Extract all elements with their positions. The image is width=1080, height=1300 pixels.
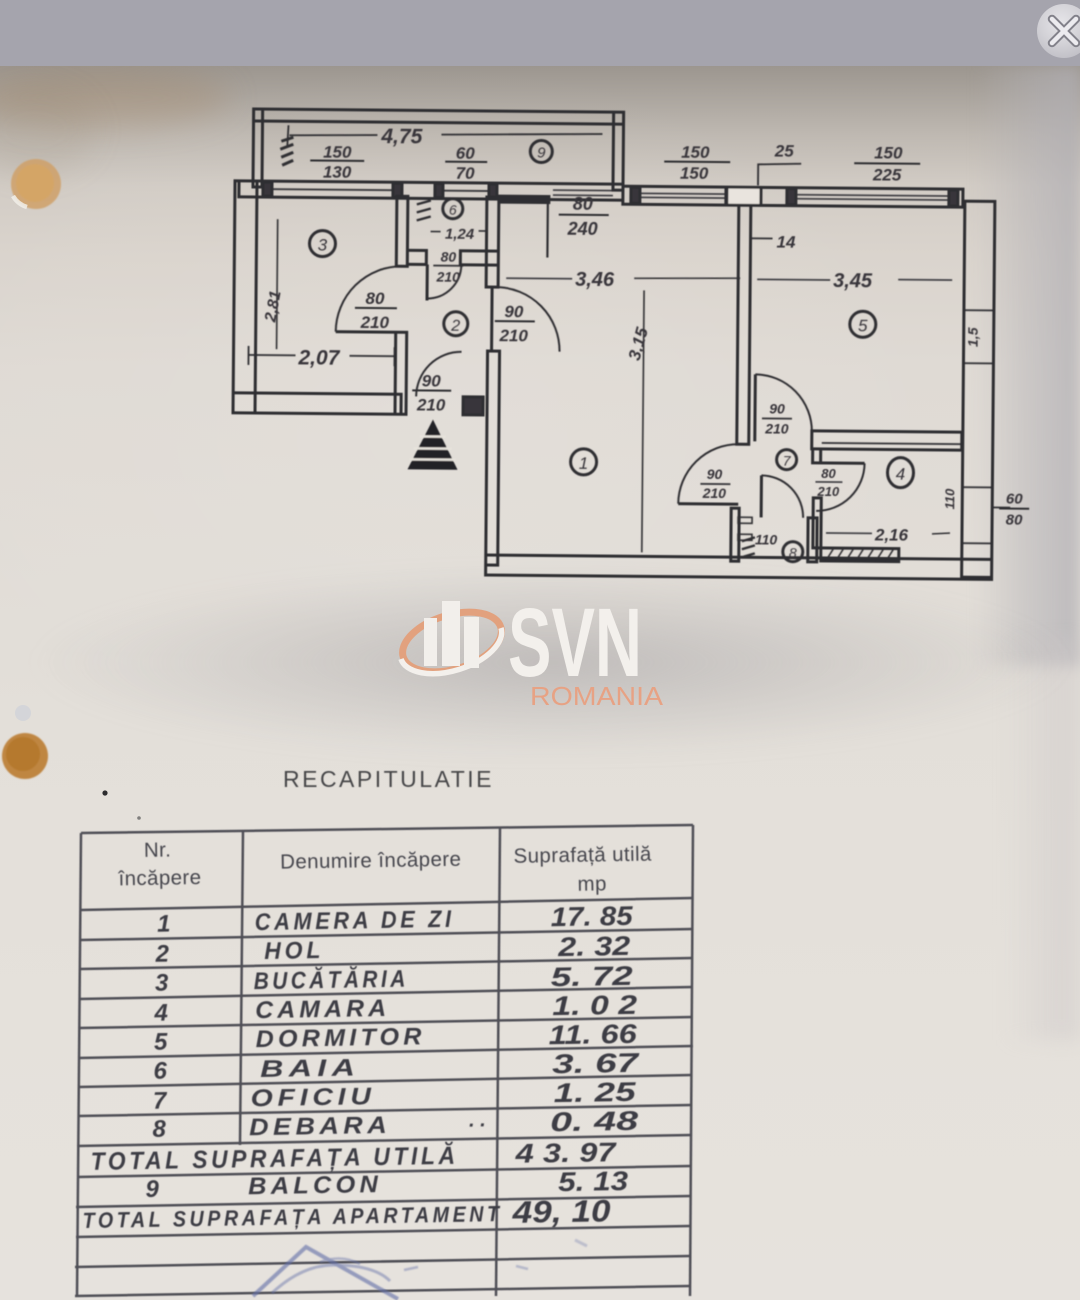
svg-text:225: 225	[872, 165, 902, 184]
svg-text:6: 6	[153, 1058, 167, 1085]
svg-text:OFICIU: OFICIU	[250, 1083, 375, 1112]
svg-text:BAIA: BAIA	[260, 1054, 360, 1083]
svg-text:CAMARA: CAMARA	[255, 995, 390, 1024]
svg-text:25: 25	[774, 142, 795, 161]
svg-text:2,16: 2,16	[874, 525, 909, 544]
svg-text:HOL: HOL	[264, 937, 324, 965]
svg-text:2,81: 2,81	[262, 289, 285, 324]
svg-text:5: 5	[858, 316, 868, 335]
svg-text:60: 60	[456, 144, 476, 163]
svg-text:DORMITOR: DORMITOR	[255, 1023, 425, 1053]
svg-text:1. 0 2: 1. 0 2	[552, 990, 637, 1021]
svg-text:14: 14	[776, 233, 796, 252]
svg-text:210: 210	[702, 485, 727, 501]
svg-text:4: 4	[153, 1000, 168, 1027]
svg-text:8: 8	[789, 545, 797, 561]
svg-text:1,24: 1,24	[445, 226, 475, 243]
svg-text:210: 210	[435, 269, 460, 285]
svg-text:3,15: 3,15	[625, 325, 652, 362]
svg-text:60: 60	[1006, 491, 1023, 508]
svg-text:210: 210	[498, 326, 528, 345]
svg-text:Nr.: Nr.	[144, 838, 172, 861]
svg-text:6: 6	[449, 202, 457, 218]
svg-text:1,5: 1,5	[965, 327, 981, 347]
svg-text:3: 3	[318, 236, 328, 255]
svg-text:2,07: 2,07	[297, 346, 340, 369]
svg-text:1. 25: 1. 25	[553, 1077, 637, 1108]
svg-text:1: 1	[157, 911, 171, 938]
svg-text:. .: . .	[469, 1109, 486, 1131]
svg-text:BALCON: BALCON	[248, 1171, 382, 1200]
svg-text:90: 90	[707, 466, 723, 482]
svg-text:80: 80	[441, 249, 457, 265]
svg-text:8: 8	[152, 1116, 166, 1143]
svg-text:2: 2	[154, 941, 169, 968]
svg-text:Suprafață utilă: Suprafață utilă	[513, 843, 652, 868]
svg-text:80: 80	[1006, 512, 1023, 529]
svg-text:240: 240	[567, 219, 598, 239]
svg-text:0. 48: 0. 48	[550, 1106, 638, 1137]
svg-text:9: 9	[537, 144, 546, 161]
svg-text:80: 80	[365, 289, 385, 308]
svg-text:210: 210	[416, 395, 446, 414]
svg-text:5: 5	[154, 1029, 168, 1056]
svg-text:BUCĂTĂRIA: BUCĂTĂRIA	[253, 965, 408, 996]
svg-text:90: 90	[422, 371, 442, 390]
svg-text:130: 130	[323, 163, 352, 182]
svg-text:150: 150	[323, 143, 352, 162]
svg-text:110: 110	[755, 531, 778, 547]
svg-text:90: 90	[504, 302, 524, 321]
svg-text:2. 32: 2. 32	[557, 931, 631, 962]
svg-text:CAMERA DE ZI: CAMERA DE ZI	[255, 906, 455, 936]
svg-text:3. 67: 3. 67	[552, 1048, 641, 1079]
svg-text:4 3. 97: 4 3. 97	[514, 1137, 618, 1169]
svg-text:11. 66: 11. 66	[548, 1019, 638, 1050]
svg-text:5. 13: 5. 13	[558, 1166, 628, 1197]
svg-text:80: 80	[821, 466, 836, 481]
svg-text:mp: mp	[577, 872, 607, 895]
svg-text:150: 150	[680, 164, 709, 183]
svg-text:210: 210	[360, 313, 390, 332]
svg-text:3,46: 3,46	[575, 269, 615, 291]
svg-text:7: 7	[153, 1088, 168, 1115]
svg-text:90: 90	[769, 400, 785, 416]
svg-text:Denumire încăpere: Denumire încăpere	[280, 848, 461, 874]
svg-text:9: 9	[145, 1176, 159, 1203]
svg-text:210: 210	[764, 420, 789, 436]
svg-text:49, 10: 49, 10	[511, 1193, 611, 1230]
svg-text:4: 4	[896, 465, 906, 484]
svg-text:4,75: 4,75	[380, 125, 422, 148]
svg-text:17. 85: 17. 85	[550, 901, 634, 932]
svg-text:2: 2	[450, 318, 460, 335]
svg-text:110: 110	[942, 488, 957, 510]
svg-text:3,45: 3,45	[833, 270, 873, 292]
svg-text:5. 72: 5. 72	[550, 961, 632, 992]
svg-text:1: 1	[579, 454, 589, 473]
svg-text:încăpere: încăpere	[117, 866, 201, 890]
svg-text:70: 70	[456, 164, 476, 183]
svg-text:RECAPITULATIE: RECAPITULATIE	[283, 766, 494, 792]
svg-text:TOTAL SUPRAFAȚA UTILĂ: TOTAL SUPRAFAȚA UTILĂ	[90, 1141, 458, 1176]
svg-text:ROMANIA: ROMANIA	[530, 681, 664, 711]
svg-text:7: 7	[783, 453, 792, 469]
svg-text:210: 210	[816, 484, 840, 499]
svg-text:DEBARA: DEBARA	[249, 1112, 391, 1141]
svg-text:150: 150	[874, 143, 903, 162]
svg-text:150: 150	[681, 143, 710, 162]
svg-text:3: 3	[155, 970, 169, 997]
svg-text:80: 80	[573, 194, 593, 214]
